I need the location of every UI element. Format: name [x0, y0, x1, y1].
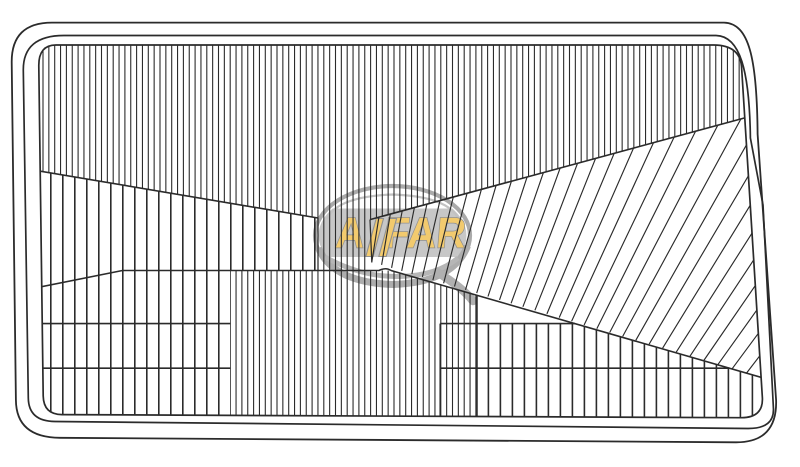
svg-text:A: A — [334, 208, 367, 257]
